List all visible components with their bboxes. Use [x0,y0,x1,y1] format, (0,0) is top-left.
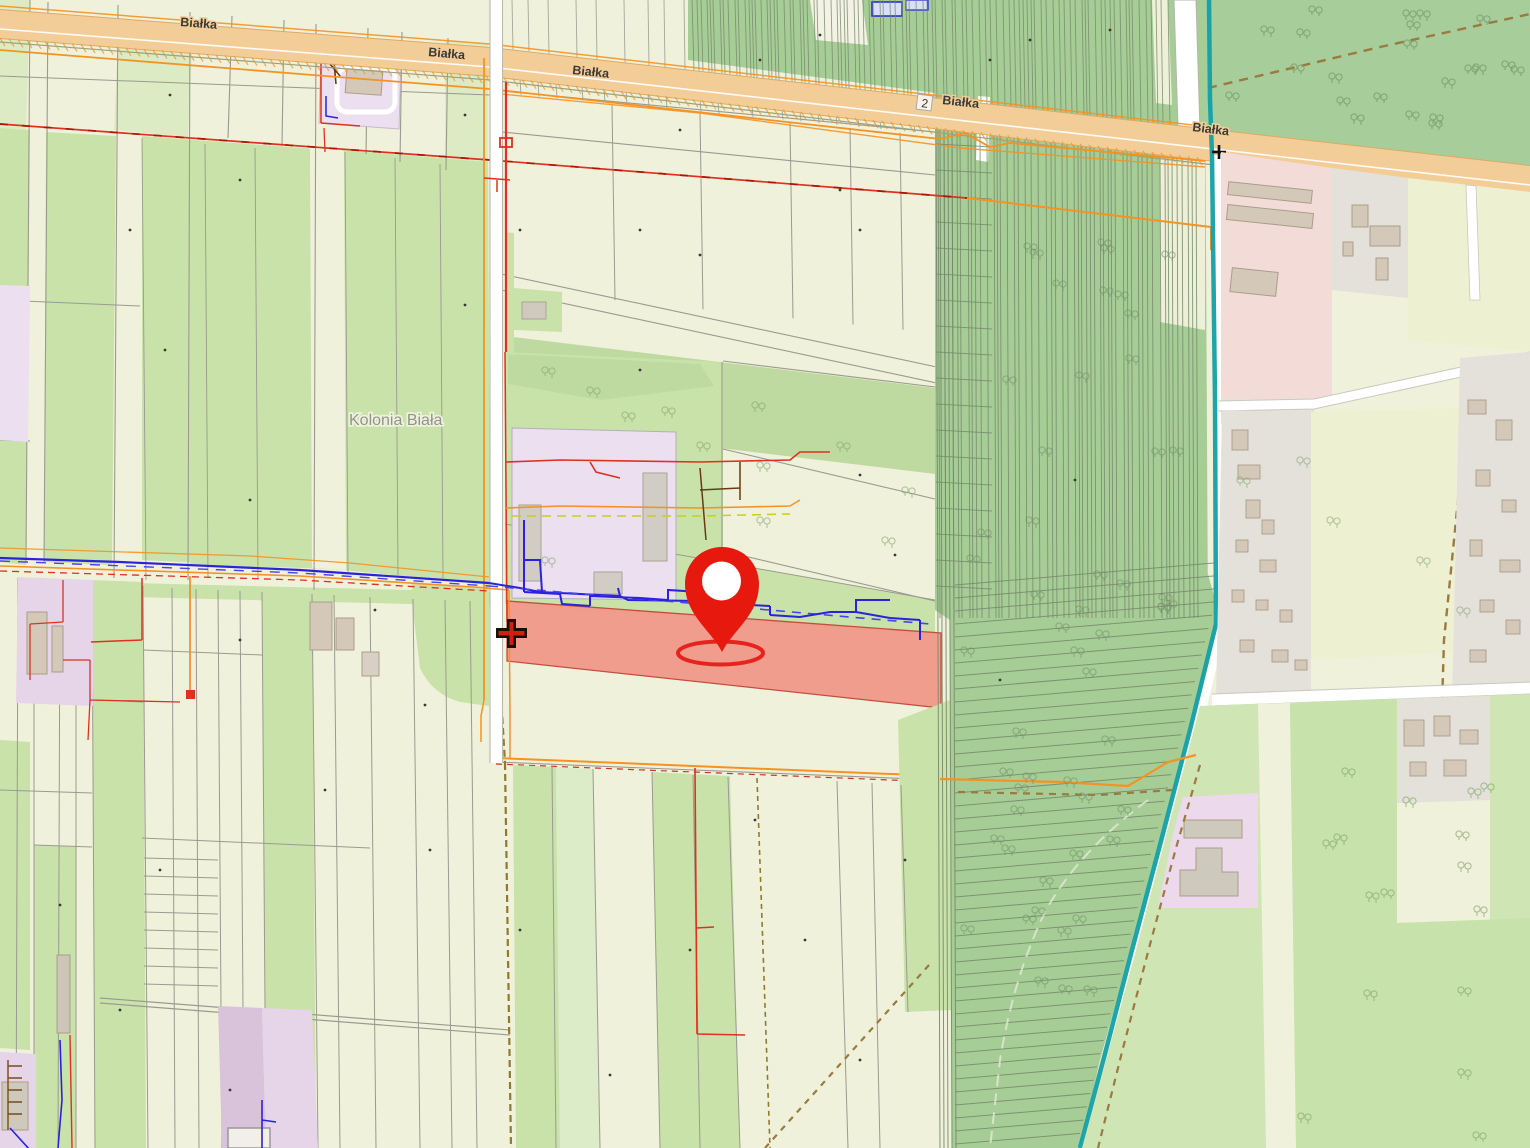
svg-text:Białka: Białka [180,15,219,32]
svg-text:Kolonia Biała: Kolonia Biała [349,412,443,429]
